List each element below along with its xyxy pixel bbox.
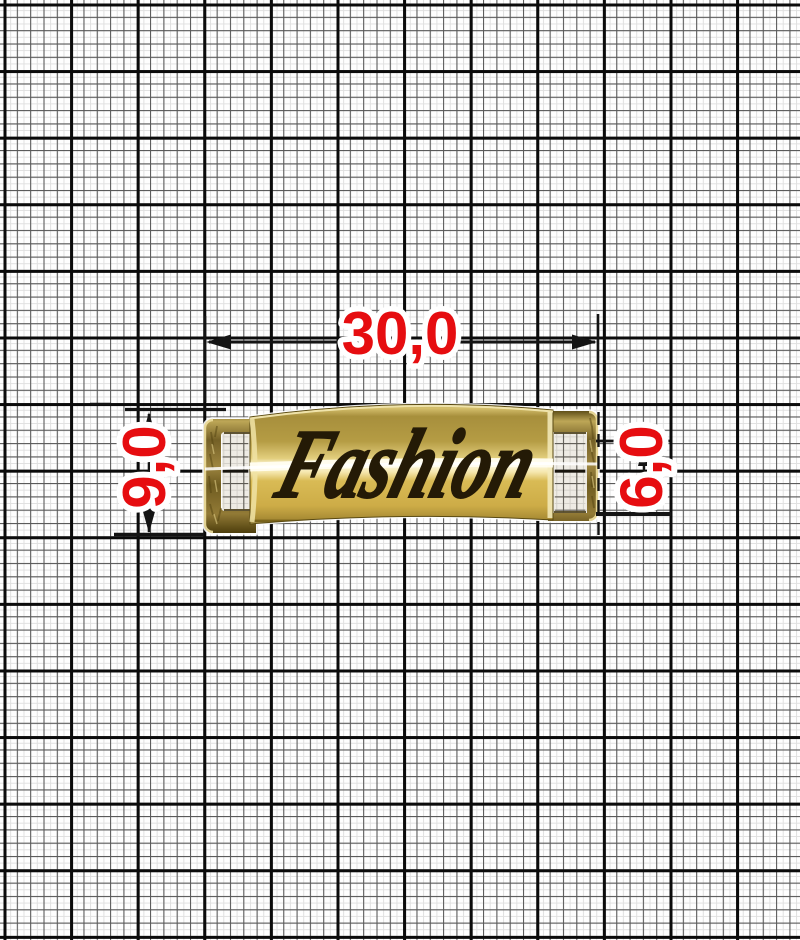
svg-text:30,0: 30,0 xyxy=(342,300,459,367)
svg-text:Fashion: Fashion xyxy=(265,410,550,520)
svg-text:6,0: 6,0 xyxy=(608,425,675,508)
svg-text:9,0: 9,0 xyxy=(111,425,178,508)
